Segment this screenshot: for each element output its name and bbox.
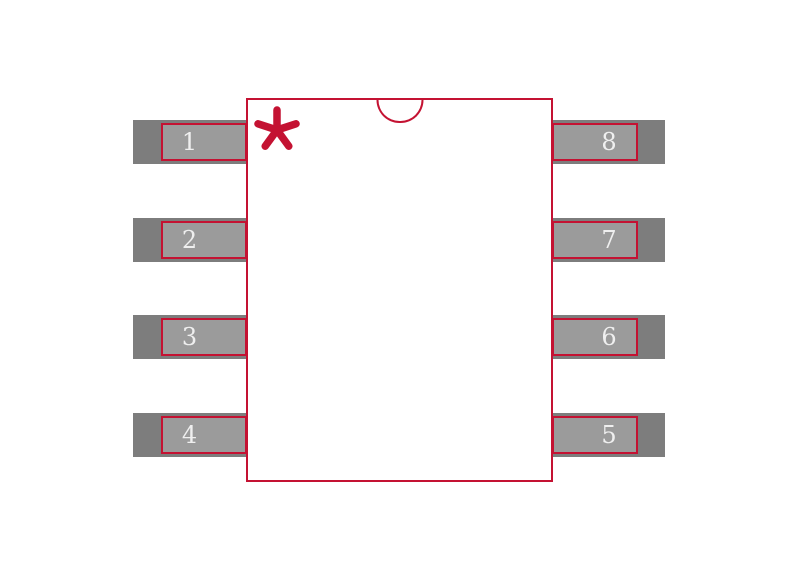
pin-pad-6: 6 (553, 315, 665, 359)
pin-pad-4: 4 (133, 413, 246, 457)
pin-pad-3: 3 (133, 315, 246, 359)
pin-number-1: 1 (133, 120, 246, 164)
pin-number-6: 6 (553, 315, 665, 359)
orientation-notch (376, 100, 423, 123)
pin-number-8: 8 (553, 120, 665, 164)
pin-number-2: 2 (133, 218, 246, 262)
pin-pad-2: 2 (133, 218, 246, 262)
pin-number-3: 3 (133, 315, 246, 359)
pin1-asterisk-icon (253, 106, 301, 154)
pin-pad-8: 8 (553, 120, 665, 164)
package-body-outline (246, 98, 553, 482)
pin-number-5: 5 (553, 413, 665, 457)
pin-pad-7: 7 (553, 218, 665, 262)
pin-number-7: 7 (553, 218, 665, 262)
footprint-diagram: 1 2 3 4 8 7 6 5 (0, 0, 800, 579)
pin-pad-1: 1 (133, 120, 246, 164)
pin-pad-5: 5 (553, 413, 665, 457)
pin-number-4: 4 (133, 413, 246, 457)
